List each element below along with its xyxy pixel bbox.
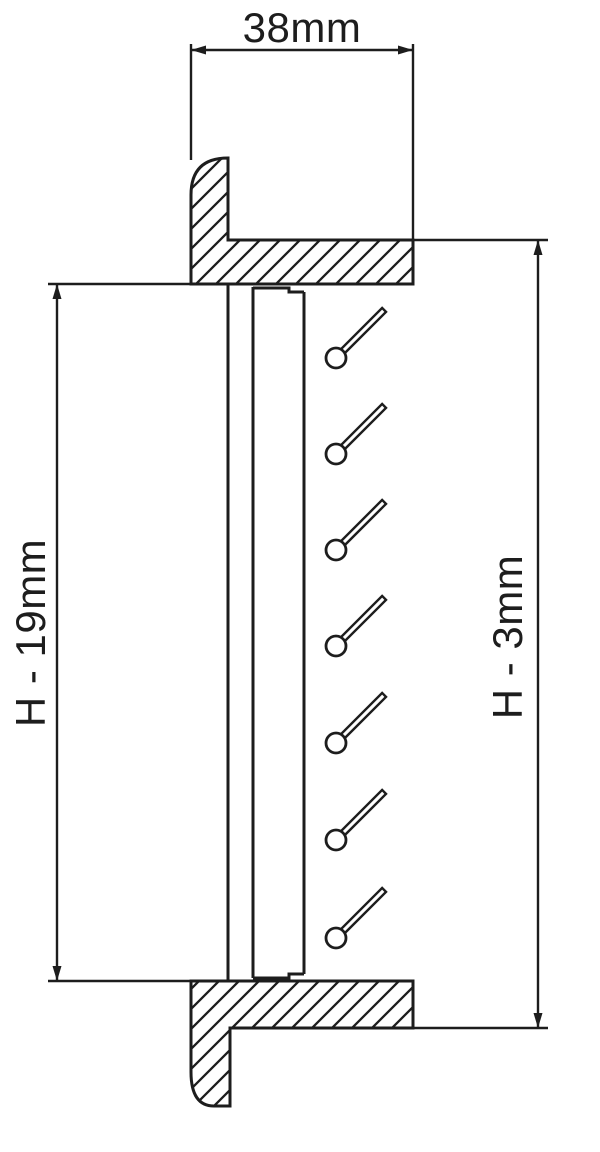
louver-section-drawing: 38mm H - 19mm H - 3mm: [0, 0, 600, 1152]
overall-arrow-top: [534, 240, 543, 255]
louver-blade: [326, 693, 386, 753]
louver-blade: [326, 596, 386, 656]
blade-pivot-circle: [326, 540, 346, 560]
opening-dimension-label: H - 19mm: [7, 539, 54, 727]
blade-slat: [339, 500, 386, 547]
frame-top-cap-step: [253, 288, 304, 292]
width-arrow-left: [191, 46, 206, 55]
opening-arrow-bottom: [53, 966, 62, 981]
blade-slat: [339, 596, 386, 643]
blade-pivot-circle: [326, 444, 346, 464]
louver-blade: [326, 500, 386, 560]
blade-slat: [339, 308, 386, 355]
blade-pivot-circle: [326, 733, 346, 753]
bottom-flange-section: [191, 981, 413, 1106]
top-flange-section: [191, 158, 413, 284]
opening-arrow-top: [53, 284, 62, 299]
overall-arrow-bottom: [534, 1013, 543, 1028]
blade-slat: [339, 790, 386, 837]
drawing-canvas: 38mm H - 19mm H - 3mm: [0, 0, 600, 1152]
blade-pivot-circle: [326, 636, 346, 656]
frame-bottom-cap-step: [253, 974, 304, 978]
blade-pivot-circle: [326, 928, 346, 948]
louver-blade: [326, 888, 386, 948]
louver-blade: [326, 404, 386, 464]
blade-pivot-circle: [326, 348, 346, 368]
blade-slat: [339, 404, 386, 451]
width-dimension-label: 38mm: [243, 4, 362, 51]
blade-slat: [339, 888, 386, 935]
blade-pivot-circle: [326, 830, 346, 850]
louver-blades-group: [326, 308, 386, 948]
louver-blade: [326, 790, 386, 850]
louver-blade: [326, 308, 386, 368]
width-arrow-right: [398, 46, 413, 55]
blade-slat: [339, 693, 386, 740]
overall-dimension-label: H - 3mm: [484, 555, 531, 720]
